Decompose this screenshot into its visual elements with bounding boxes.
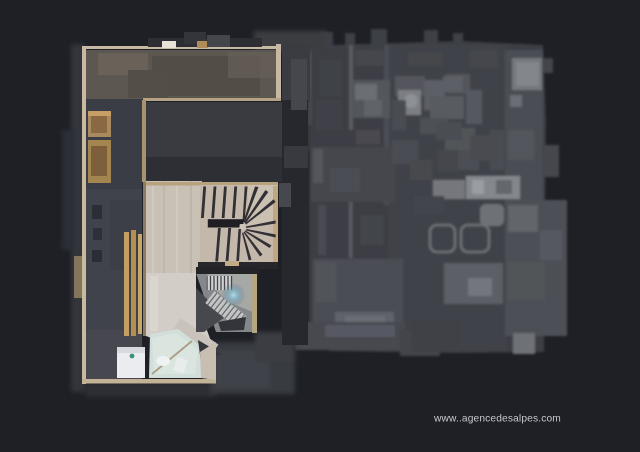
svg-text:www..agencedesalpes.com: www..agencedesalpes.com bbox=[433, 414, 561, 425]
